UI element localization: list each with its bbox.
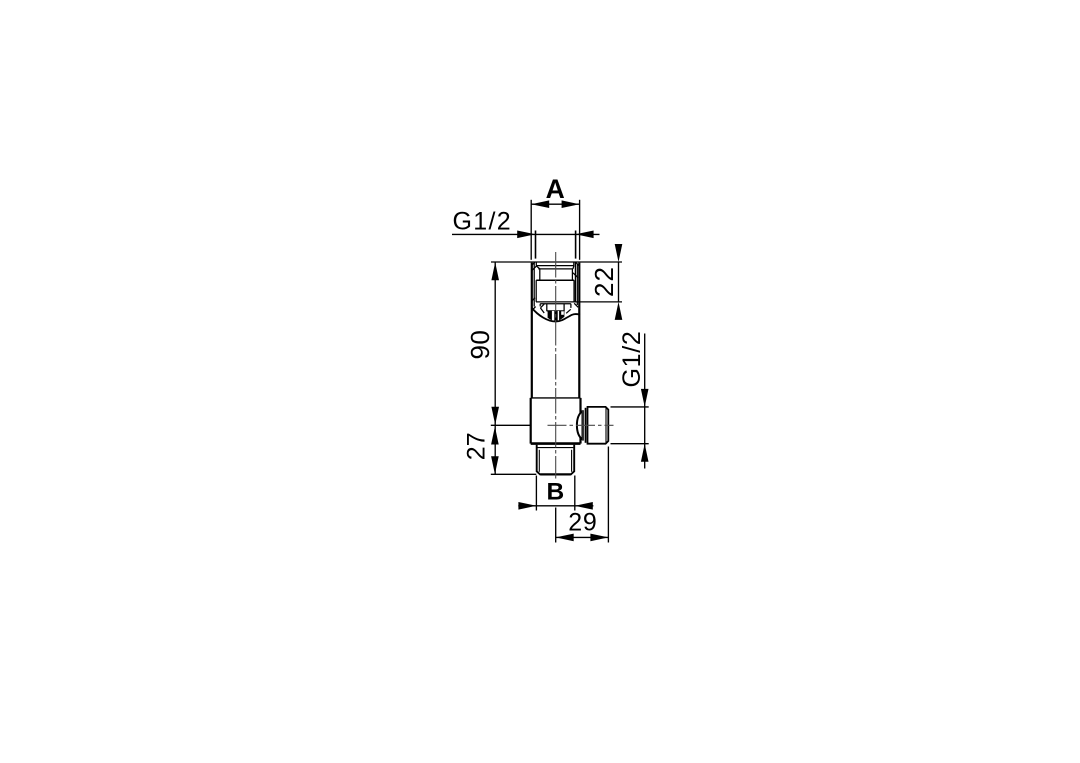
svg-text:G1/2: G1/2 — [618, 331, 646, 388]
svg-text:90: 90 — [465, 330, 495, 360]
svg-text:29: 29 — [568, 508, 597, 536]
svg-text:B: B — [546, 479, 564, 506]
svg-text:G1/2: G1/2 — [453, 208, 512, 236]
svg-text:A: A — [546, 174, 565, 204]
svg-text:27: 27 — [463, 432, 491, 460]
svg-text:22: 22 — [589, 266, 619, 297]
